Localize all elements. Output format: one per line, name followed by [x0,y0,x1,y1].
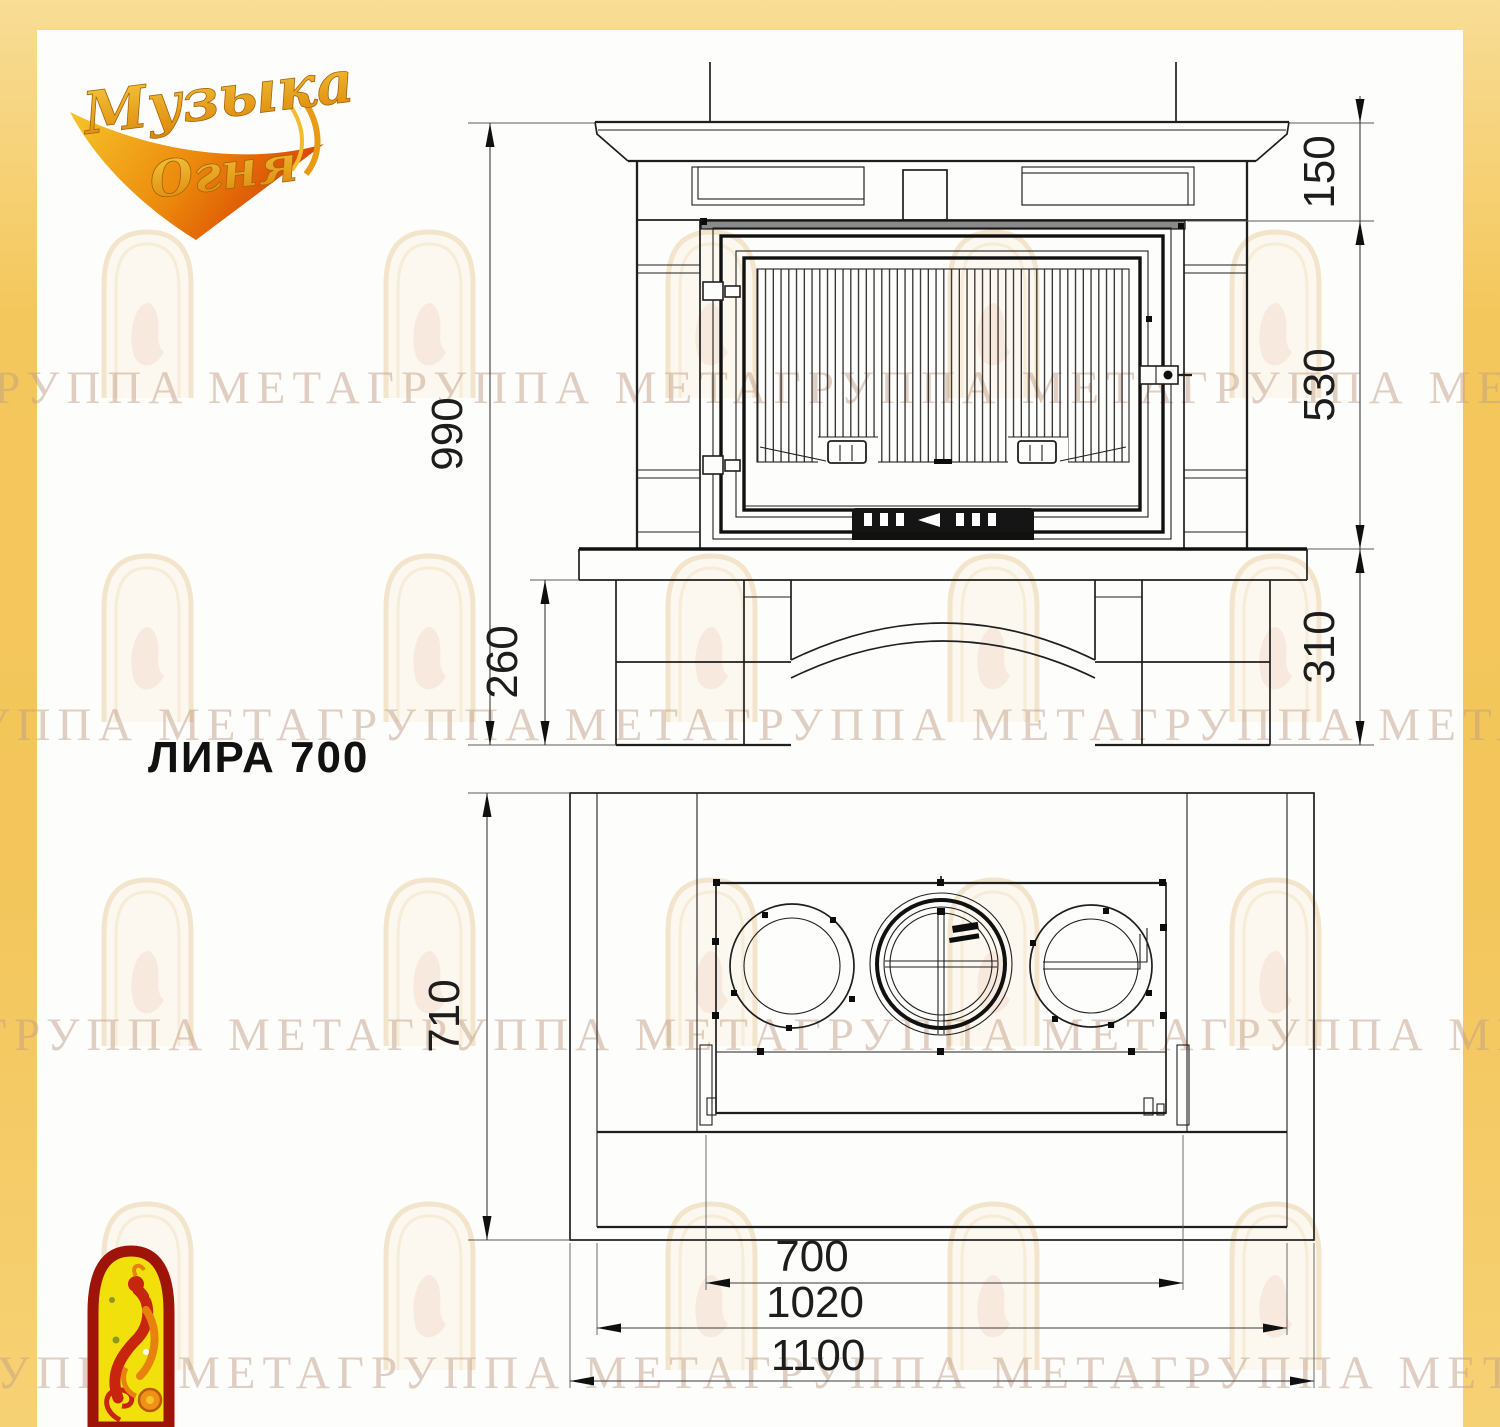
door-foot-left [828,441,866,463]
dim-label-310: 310 [1295,610,1344,683]
page-background: ГРУППА МЕТАГРУППА МЕТАГРУППА МЕТАГРУППА … [0,0,1500,1427]
model-label: ЛИРА 700 [148,733,369,782]
dim-label-700: 700 [775,1232,848,1281]
dim-label-260: 260 [478,625,527,698]
dim-label-150: 150 [1295,135,1344,208]
dim-label-990: 990 [423,397,472,470]
fireplace-dimensional-drawing: ГРУППА МЕТАГРУППА МЕТАГРУППА МЕТАГРУППА … [0,0,1500,1427]
watermark-text-row: ГРУППА МЕТАГРУППА МЕТАГРУППА МЕТАГРУППА … [0,1347,1500,1399]
firebird-emblem [93,1251,169,1427]
dim-label-530: 530 [1295,348,1344,421]
watermark-text-row: ГРУППА МЕТАГРУППА МЕТАГРУППА МЕТАГРУППА … [0,1009,1500,1061]
watermark-text-row: ГРУППА МЕТАГРУППА МЕТАГРУППА МЕТАГРУППА … [0,362,1500,414]
dim-label-1100: 1100 [771,1331,866,1380]
door-foot-right [1018,441,1056,463]
vent-control [852,508,1034,540]
dim-label-710: 710 [420,979,469,1052]
dim-label-1020: 1020 [766,1278,864,1327]
